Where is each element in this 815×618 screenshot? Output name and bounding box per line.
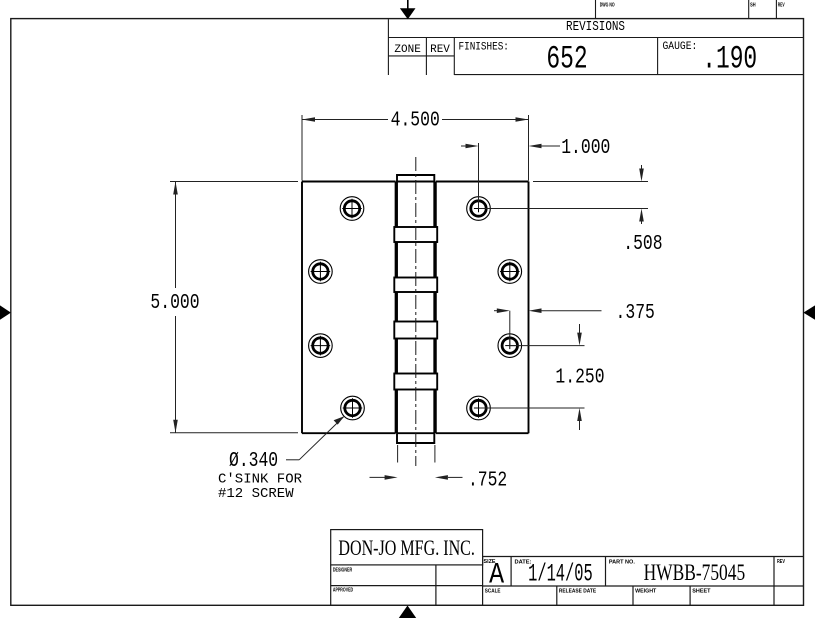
svg-text:.508: .508 (623, 231, 662, 256)
svg-text:1.250: 1.250 (555, 365, 604, 390)
svg-text:652: 652 (546, 42, 587, 78)
svg-text:SH: SH (750, 2, 756, 8)
svg-text:1/14/05: 1/14/05 (528, 561, 593, 589)
svg-text:PART NO.: PART NO. (609, 560, 636, 566)
svg-text:Ø.340: Ø.340 (229, 448, 278, 473)
svg-text:RELEASE DATE: RELEASE DATE (559, 589, 597, 595)
svg-text:DWG NO: DWG NO (600, 2, 615, 8)
svg-text:REV: REV (777, 559, 785, 565)
svg-text:4.500: 4.500 (391, 107, 440, 132)
svg-text:SHEET: SHEET (692, 589, 711, 595)
svg-text:.375: .375 (616, 300, 655, 325)
svg-text:ZONE: ZONE (394, 44, 421, 56)
svg-text:.190: .190 (702, 42, 757, 78)
svg-text:DON-JO MFG. INC.: DON-JO MFG. INC. (338, 535, 475, 560)
svg-text:REV: REV (778, 2, 785, 8)
svg-text:#12 SCREW: #12 SCREW (218, 486, 294, 502)
svg-text:HWBB-75045: HWBB-75045 (644, 560, 746, 585)
svg-text:A: A (489, 559, 505, 592)
svg-text:FINISHES:: FINISHES: (459, 42, 509, 54)
svg-text:1.000: 1.000 (561, 135, 610, 160)
svg-text:REV: REV (430, 44, 450, 56)
svg-text:GAUGE:: GAUGE: (663, 41, 698, 54)
svg-text:SCALE: SCALE (485, 589, 501, 595)
svg-text:.752: .752 (468, 467, 507, 492)
svg-text:5.000: 5.000 (150, 290, 199, 315)
svg-text:REVISIONS: REVISIONS (566, 19, 625, 34)
svg-text:WEIGHT: WEIGHT (635, 589, 657, 595)
svg-text:APPROVED: APPROVED (333, 588, 353, 594)
svg-text:DESIGNER: DESIGNER (333, 568, 352, 574)
